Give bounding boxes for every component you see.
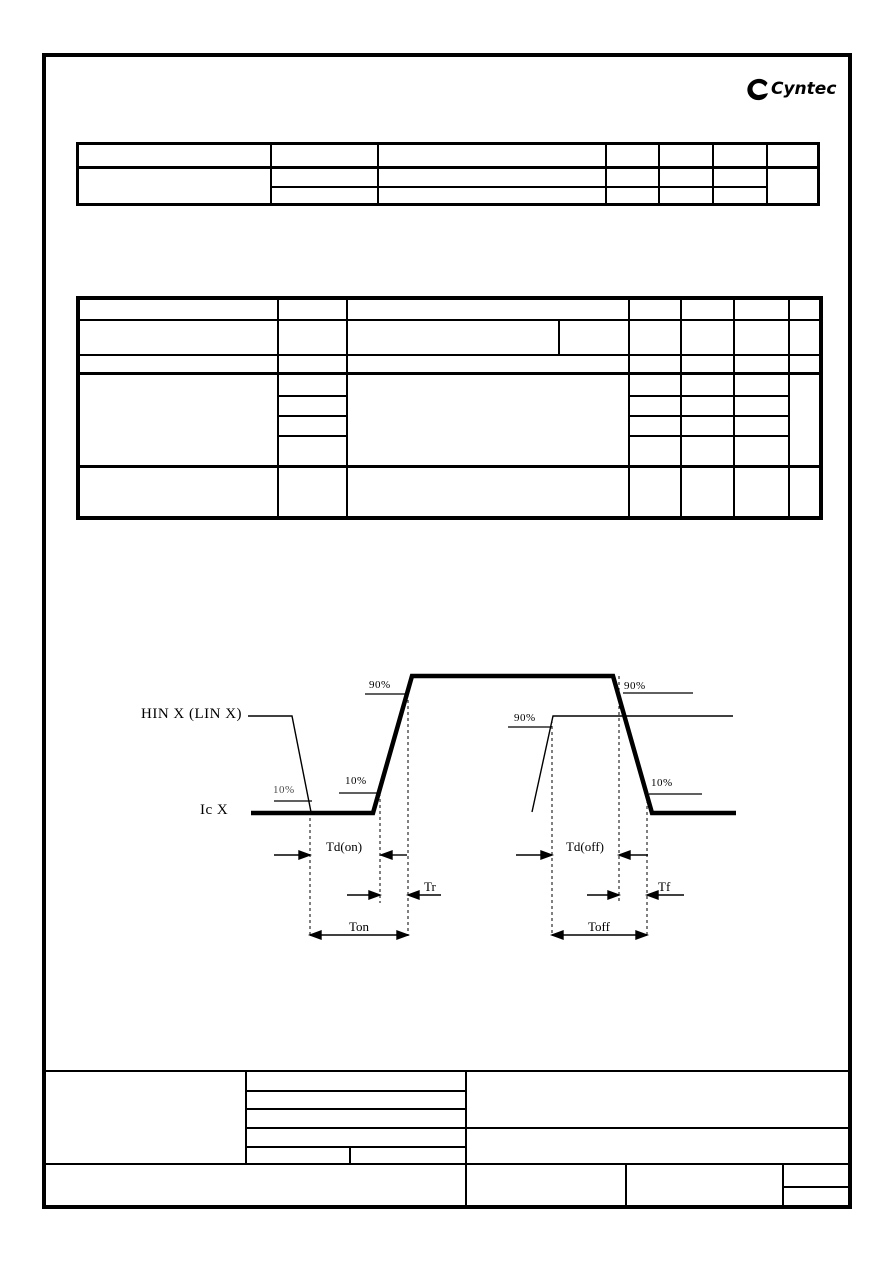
table-line <box>628 300 630 516</box>
table-line <box>80 319 819 321</box>
level-label-fall-10: 10% <box>651 777 673 789</box>
titleblock-line <box>245 1070 247 1164</box>
table-line <box>270 186 768 188</box>
spec-table-1 <box>76 142 820 206</box>
table-line <box>277 435 348 437</box>
titleblock-line <box>782 1186 848 1188</box>
table-line <box>277 300 279 516</box>
table-line <box>346 300 348 516</box>
input-signal-label: HIN X (LIN X) <box>141 706 242 723</box>
timing-label-ton: Ton <box>329 919 389 935</box>
brand-name: Cyntec <box>771 79 836 99</box>
table-line <box>377 145 379 203</box>
table-line <box>788 300 790 516</box>
datasheet-page: Cyntec <box>0 0 892 1263</box>
table-line <box>558 319 560 354</box>
table-line <box>277 415 348 417</box>
table-line <box>80 354 819 356</box>
table-line <box>712 145 714 203</box>
table-line <box>605 145 607 203</box>
level-label-in-fall-10: 10% <box>273 784 295 796</box>
titleblock-line <box>245 1090 467 1092</box>
table-line <box>733 300 735 516</box>
table-line <box>658 145 660 203</box>
timing-label-td-off: Td(off) <box>550 839 620 855</box>
table-line <box>80 465 819 468</box>
table-line <box>628 435 790 437</box>
titleblock-line <box>245 1108 467 1110</box>
level-label-in-rise-90: 90% <box>514 712 536 724</box>
titleblock-line <box>782 1163 784 1205</box>
table-line <box>628 395 790 397</box>
level-label-rise-10: 10% <box>345 775 367 787</box>
level-label-rise-90: 90% <box>369 679 391 691</box>
timing-label-toff: Toff <box>569 919 629 935</box>
table-line <box>680 300 682 516</box>
titleblock-line <box>42 1163 852 1165</box>
table-line <box>80 372 819 375</box>
titleblock-line <box>349 1146 351 1164</box>
timing-label-tf: Tf <box>658 879 670 895</box>
brand-logo: Cyntec <box>744 76 836 102</box>
table-line <box>628 415 790 417</box>
titleblock-line <box>245 1146 467 1148</box>
timing-label-tr: Tr <box>424 879 436 895</box>
cyntec-swirl-icon <box>744 77 770 102</box>
table-line <box>79 166 817 169</box>
page-frame <box>42 53 852 1209</box>
output-signal-label: Ic X <box>200 802 228 819</box>
table-line <box>277 395 348 397</box>
table-line <box>766 145 768 203</box>
titleblock-line <box>625 1163 627 1205</box>
timing-label-td-on: Td(on) <box>309 839 379 855</box>
level-label-fall-90: 90% <box>624 680 646 692</box>
titleblock-line <box>245 1127 848 1129</box>
spec-table-2 <box>76 296 823 520</box>
titleblock-line <box>42 1070 852 1072</box>
table-line <box>270 145 272 203</box>
